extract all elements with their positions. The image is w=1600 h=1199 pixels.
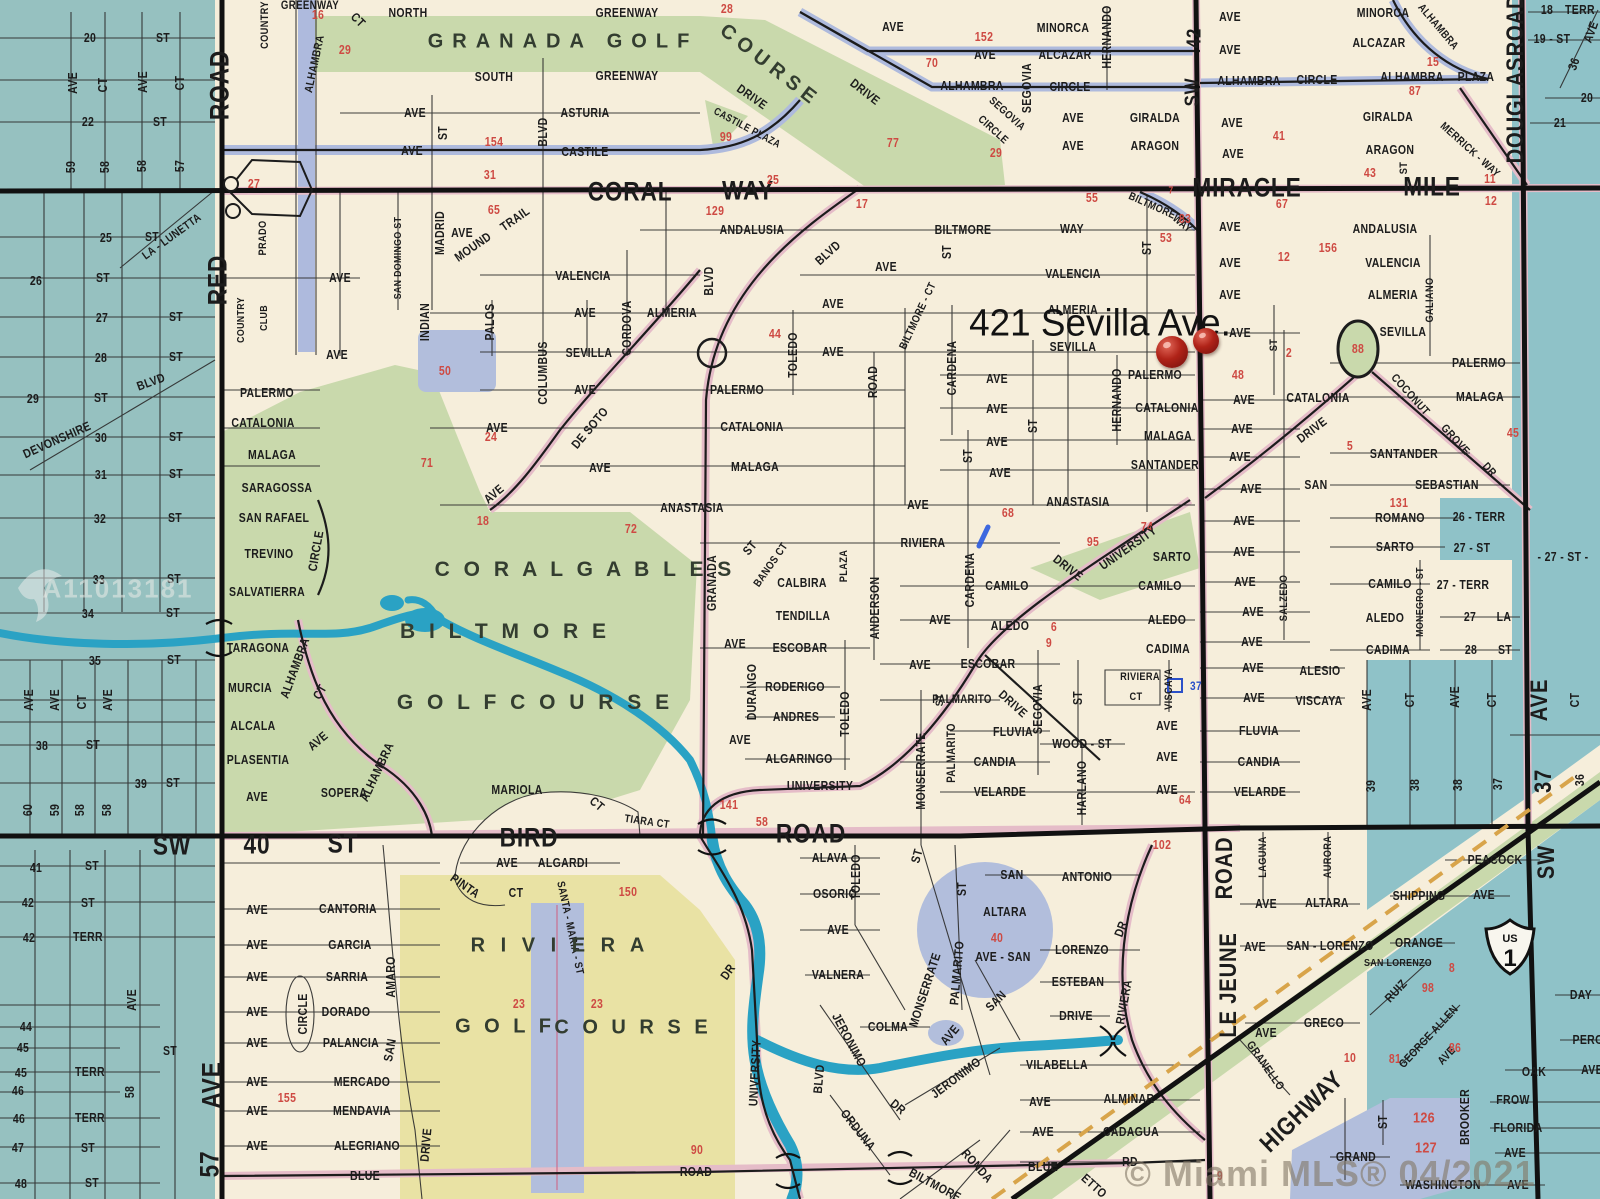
map-label: 36 [1573, 774, 1587, 786]
map-label: ST [94, 391, 108, 405]
map-label: AVE [1032, 1125, 1054, 1139]
map-label: 17 [856, 197, 868, 211]
map-label: FLUVIA [1239, 724, 1279, 738]
map-label: ROAD [776, 819, 846, 850]
map-label: ARAGON [1366, 143, 1415, 157]
map-label: ASTURIA [560, 106, 609, 120]
map-label: SEGOVIA [1031, 684, 1045, 734]
map-label: PLASENTIA [227, 753, 290, 767]
map-label: 32 [94, 512, 106, 526]
map-label: CATALONIA [231, 416, 294, 430]
watermark-footer: © Miami MLS® 04/2021 [1124, 1153, 1535, 1195]
map-label: 44 [20, 1020, 32, 1034]
map-label: 28 [721, 2, 733, 16]
map-label: RODERIGO [765, 680, 825, 694]
map-label: GREENWAY [596, 6, 659, 20]
map-label: ALHAMBRA [1380, 70, 1443, 84]
map-label: ST [436, 126, 450, 140]
map-label: SARTO [1153, 550, 1191, 564]
map-label: COUNTRY [235, 297, 247, 343]
map-label: SEGOVIA [1020, 63, 1034, 113]
map-label: CADAGUA [1103, 1125, 1159, 1139]
map-label: AVE [974, 48, 996, 62]
map-label: BROOKER [1458, 1089, 1472, 1145]
map-label: SALZEDO [1278, 575, 1290, 622]
map-label: ST [1376, 1115, 1390, 1129]
map-label: CT [75, 695, 89, 710]
map-label: ST [169, 310, 183, 324]
map-label: AVE [246, 1005, 268, 1019]
map-label: VALNERA [812, 968, 864, 982]
map-label: R I V I E R A [471, 935, 650, 958]
map-label: MARIOLA [491, 783, 542, 797]
map-label: ALMERIA [1368, 288, 1418, 302]
map-label: WOOD - ST [1052, 737, 1112, 751]
map-label: VELARDE [1234, 785, 1287, 799]
map-label: AVE [246, 1075, 268, 1089]
map-label: PEACOCK [1468, 853, 1523, 867]
map-pin [1193, 328, 1219, 354]
map-label: ST [1268, 339, 1280, 351]
map-label: TOLEDO [838, 691, 852, 737]
map-label: 20 [1581, 91, 1593, 105]
map-label: FLORIDA [1493, 1121, 1542, 1135]
map-label: CAMILO [1368, 577, 1411, 591]
map-label: ST [169, 430, 183, 444]
map-label: FLUVIA [993, 725, 1033, 739]
map-label: ALCALA [230, 719, 275, 733]
map-label: 25 [767, 173, 779, 187]
map-label: 59 [48, 804, 62, 816]
map-label: 19 - ST [1534, 32, 1571, 46]
map-label: MINORCA [1357, 6, 1410, 20]
map-label: CATALONIA [720, 420, 783, 434]
map-label: ST [156, 31, 170, 45]
map-label: 88 [1352, 342, 1364, 356]
map-label: AVE [1222, 147, 1244, 161]
map-label: - 27 - ST - [1538, 550, 1589, 564]
map-label: LE JEUNE [1215, 932, 1243, 1037]
map-label: ALEDO [991, 619, 1029, 633]
map-label: AVE [909, 658, 931, 672]
map-label: 58 [756, 815, 768, 829]
map-label: DORADO [322, 1005, 371, 1019]
map-label: ROAD [205, 50, 236, 120]
map-pin [1156, 336, 1188, 368]
map-label: ST [153, 115, 167, 129]
map-label: PRADO [257, 220, 269, 255]
map-label: 28 [1465, 643, 1477, 657]
map-label: 20 [84, 31, 96, 45]
map-label: ST [81, 1141, 95, 1155]
map-label: VALENCIA [1365, 256, 1421, 270]
map-label: PERCIVAL [1572, 1033, 1600, 1047]
map-label: 38 [36, 739, 48, 753]
map-label: ST [168, 511, 182, 525]
map-label: 102 [1153, 838, 1172, 852]
map-label: CAMILO [1138, 579, 1181, 593]
map-label: MILE [1403, 172, 1461, 203]
map-label: 60 [21, 804, 35, 816]
map-label: 48 [1232, 368, 1244, 382]
map-label: TOLEDO [786, 332, 800, 378]
map-label: BLUE [1028, 1160, 1058, 1174]
map-label: 37 [1491, 778, 1505, 790]
map-label: G O L F [455, 1016, 555, 1039]
map-label: ST [166, 606, 180, 620]
map-label: 10 [1344, 1051, 1356, 1065]
map-label: INDIAN [418, 303, 432, 341]
map-label: 27 - TERR [1437, 578, 1490, 592]
map-label: 150 [619, 885, 638, 899]
map-label: PALERMO [710, 383, 764, 397]
map-label: ST [955, 882, 969, 896]
map-label: AVE [48, 689, 62, 711]
map-label: 68 [1002, 506, 1014, 520]
map-label: AMARO [384, 956, 398, 997]
map-label: ALCAZAR [1352, 36, 1405, 50]
map-label: MINORCA [1037, 21, 1090, 35]
map-label: SEVILLA [566, 346, 613, 360]
map-label: ALAVA [812, 851, 848, 865]
map-label: TERR [73, 930, 103, 944]
map-label: CT [1130, 691, 1143, 703]
map-label: AVE [589, 461, 611, 475]
map-label: LORENZO [1055, 943, 1109, 957]
map-label: RIVIERA [901, 536, 946, 550]
map-label: VISCAYA [1295, 694, 1342, 708]
map-label: 70 [926, 56, 938, 70]
map-label: GRANADA [705, 555, 719, 611]
map-label: MALAGA [1456, 390, 1504, 404]
map-label: WAY [1060, 222, 1084, 236]
map-label: SAN [1304, 478, 1327, 492]
map-label: 38 [1408, 779, 1422, 791]
map-label: MADRID [433, 211, 447, 255]
map-label: 77 [887, 136, 899, 150]
map-label: AVE [1233, 393, 1255, 407]
map-label: MERCADO [334, 1075, 391, 1089]
map-label: 27 [248, 177, 260, 191]
map-label: 43 [1364, 166, 1376, 180]
map-label: 37 [1530, 769, 1558, 793]
map-label: OAK [1522, 1065, 1546, 1079]
map-label: SOUTH [475, 70, 513, 84]
map-label: SANTANDER [1370, 447, 1438, 461]
map-label: 39 [1364, 780, 1378, 792]
map-label: ALESIO [1299, 664, 1340, 678]
map-label: CT [1568, 693, 1582, 708]
map-label: AVE [1240, 482, 1262, 496]
map-label: 44 [769, 327, 781, 341]
map-label: AVE [986, 435, 1008, 449]
map-label: 29 [339, 43, 351, 57]
map-label: SW [153, 831, 191, 862]
map-label: NORTH [388, 6, 427, 20]
map-label: PALERMO [240, 386, 294, 400]
map-label: 26 - TERR [1453, 510, 1506, 524]
map-label: MURCIA [228, 681, 272, 695]
map-label: GRECO [1304, 1016, 1344, 1030]
map-label: DURANGO [745, 664, 759, 721]
map-label: DRIVE [418, 1128, 435, 1163]
map-label: 72 [625, 522, 637, 536]
map-label: ROAD [1211, 837, 1239, 900]
map-label: ROAD [680, 1165, 712, 1179]
map-label: 58 [135, 160, 149, 172]
map-label: 27 [96, 311, 108, 325]
map-label: BLVD [536, 117, 550, 146]
map-label: AVE [246, 1104, 268, 1118]
map-label: ESTEBAN [1052, 975, 1105, 989]
map-label: AVE [1244, 940, 1266, 954]
map-label: 90 [691, 1143, 703, 1157]
map-label: PALMARITO [946, 723, 958, 783]
map-label: AVE [1243, 691, 1265, 705]
map-label: AVE [401, 144, 423, 158]
map-label: SALVATIERRA [229, 585, 305, 599]
map-label: LA [1497, 610, 1512, 624]
map-label: AVE [1234, 575, 1256, 589]
map-label: 42 [23, 931, 35, 945]
map-label: 50 [439, 364, 451, 378]
map-label: VALENCIA [555, 269, 611, 283]
map-label: BILTMORE [935, 223, 992, 237]
map-label: 46 [13, 1112, 25, 1126]
map-label: CARDENA [963, 553, 977, 608]
map-label: 16 [312, 8, 324, 22]
map-label: B I L T M O R E [400, 620, 610, 644]
map-label: SARRIA [326, 970, 368, 984]
map-label: CT [1485, 693, 1499, 708]
map-label: AVE [1229, 450, 1251, 464]
map-label: ANDALUSIA [1353, 222, 1418, 236]
map-label: 12 [1485, 194, 1497, 208]
map-label: PLAZA [1458, 70, 1495, 84]
map-label: 58 [100, 804, 114, 816]
map-label: AVE [1219, 10, 1241, 24]
map-label: ST [1498, 643, 1512, 657]
map-label: 41 [30, 861, 42, 875]
map-label: ST [86, 738, 100, 752]
map-label: VILABELLA [1026, 1058, 1088, 1072]
map-label: 11 [1484, 172, 1496, 186]
map-label: 30 [95, 431, 107, 445]
map-label: ST [166, 776, 180, 790]
map-label: ST [1071, 691, 1085, 705]
map-label: AVE [1255, 1026, 1277, 1040]
map-label: ST [169, 350, 183, 364]
map-label: 18 [1541, 3, 1553, 17]
map-label: 59 [64, 161, 78, 173]
map-label: SHIPPING [1393, 889, 1446, 903]
map-label: SAN LORENZO [1364, 957, 1432, 969]
map-label: ORANGE [1395, 936, 1443, 950]
us1-shield-us: US [1502, 933, 1517, 945]
map-label: ST [167, 653, 181, 667]
map-label: SARAGOSSA [242, 481, 313, 495]
map-label: RED [203, 255, 234, 305]
map-label: AVE [1473, 888, 1495, 902]
map-label: 27 - ST [1454, 541, 1491, 555]
map-label: TENDILLA [776, 609, 831, 623]
map-label: AVE [1526, 679, 1554, 721]
map-label: C O U R S E [554, 1017, 711, 1040]
map-label: ST [934, 694, 946, 706]
map-label: 12 [1278, 250, 1290, 264]
map-label: AVE [1221, 116, 1243, 130]
map-label: 64 [1179, 793, 1191, 807]
map-label: AVE [986, 402, 1008, 416]
map-label: AVE [1062, 139, 1084, 153]
map-label: AVE [729, 733, 751, 747]
map-label: ANASTASIA [660, 501, 723, 515]
map-label: AVE [246, 970, 268, 984]
map-label: BLVD [811, 1064, 827, 1094]
map-label: TERR [75, 1111, 105, 1125]
us1-shield-number: 1 [1503, 945, 1516, 972]
map-label: 57 [173, 160, 187, 172]
map-label: COLUMBUS [536, 341, 550, 404]
map-label: 7 [1168, 186, 1173, 197]
map-label: 99 [720, 130, 732, 144]
map-label: 131 [1390, 496, 1409, 510]
map-label: HERNANDO [1110, 368, 1124, 431]
map-label: AVE [66, 72, 80, 94]
map-label: AVE [1581, 1063, 1600, 1077]
map-label: RIVIERA [1120, 671, 1160, 683]
map-label: 40 [244, 830, 271, 861]
map-label: AVE - SAN [975, 950, 1030, 964]
map-label: AVE [329, 271, 351, 285]
address-annotation: 421 Sevilla Ave. [969, 303, 1231, 346]
map-screenshot: US 1 20ST22STAVECTAVECT5958585725ST26STL… [0, 0, 1600, 1199]
map-label: 58 [123, 1086, 137, 1098]
map-label: AVE [1219, 43, 1241, 57]
map-label: AVE [907, 498, 929, 512]
map-label: 141 [720, 798, 739, 812]
map-label: 39 [135, 777, 147, 791]
map-label: COLMA [868, 1020, 908, 1034]
map-label: AVE [246, 903, 268, 917]
map-label: AVE [1242, 661, 1264, 675]
map-label: MENDAVIA [333, 1104, 391, 1118]
map-label: ALEDO [1148, 613, 1186, 627]
map-label: AVE [1233, 545, 1255, 559]
map-label: ROMANO [1375, 511, 1425, 525]
map-label: 40 [991, 931, 1003, 945]
map-label: SAN - LORENZO [1286, 939, 1373, 953]
map-label: CT [509, 886, 524, 900]
map-label: 18 [477, 514, 489, 528]
map-label: AVE [1029, 1095, 1051, 1109]
map-label: ANASTASIA [1046, 495, 1109, 509]
map-label: DRIVE [1059, 1009, 1093, 1023]
map-label: AVE [1219, 220, 1241, 234]
map-label: 41 [1273, 129, 1285, 143]
map-label: AVE [882, 20, 904, 34]
map-label: ST [85, 859, 99, 873]
map-label: 55 [1086, 191, 1098, 205]
map-label: AVE [827, 923, 849, 937]
map-label: 58 [73, 804, 87, 816]
map-label: 37 [1190, 679, 1202, 693]
map-label: COUNTRY [259, 1, 271, 49]
map-label: 31 [95, 468, 107, 482]
map-label: 86 [1449, 1041, 1461, 1055]
map-label: 156 [1319, 241, 1338, 255]
map-label: CANTORIA [319, 902, 377, 916]
map-label: PALANCIA [323, 1036, 379, 1050]
map-label: AVE [1219, 256, 1241, 270]
map-label: CALBIRA [777, 576, 827, 590]
map-label: 67 [1276, 197, 1288, 211]
map-label: CT [96, 78, 110, 93]
map-label: 42 [1184, 28, 1207, 48]
map-label: AVE [246, 1139, 268, 1153]
map-label: ALTARA [983, 905, 1027, 919]
map-label: TERR [1565, 3, 1595, 17]
map-label: CATALONIA [1286, 391, 1349, 405]
map-label: GREENWAY [281, 0, 339, 12]
map-label: ST [169, 467, 183, 481]
map-label: 45 [17, 1041, 29, 1055]
map-label: AVE [1242, 605, 1264, 619]
map-label: ALGARDI [538, 856, 588, 870]
map-label: DAY [1570, 988, 1592, 1002]
map-label: PALERMO [1452, 356, 1506, 370]
map-label: AVE [574, 383, 596, 397]
map-label: ST [1398, 162, 1410, 174]
map-label: AVE [1255, 897, 1277, 911]
map-label: CADIMA [1146, 642, 1190, 656]
map-label: DOUGLAS [1502, 57, 1530, 164]
map-label: CADIMA [1366, 643, 1410, 657]
map-label: SEBASTIAN [1415, 478, 1479, 492]
map-label: ALCAZAR [1038, 48, 1091, 62]
map-label: GREENWAY [596, 69, 659, 83]
map-label: ESCOBAR [773, 641, 828, 655]
map-label: AVE [875, 260, 897, 274]
map-label: 57 [195, 1151, 226, 1178]
map-label: MONEGRO - ST [1414, 567, 1426, 637]
map-label: CLUB [258, 305, 270, 331]
map-label: AVE [326, 348, 348, 362]
map-label: ALEDO [1366, 611, 1404, 625]
map-label: BLVD [702, 266, 716, 295]
map-label: 23 [513, 997, 525, 1011]
map-label: GRANADA GOLF [428, 31, 699, 54]
map-label: TERR [75, 1065, 105, 1079]
map-label: AVE [496, 856, 518, 870]
map-label: 26 [30, 274, 42, 288]
map-label: 15 [1427, 55, 1439, 69]
map-label: AVE [1229, 326, 1251, 340]
map-label: 6 [1051, 620, 1057, 634]
basemap-graphics: US 1 [0, 0, 1600, 1199]
map-label: 22 [82, 115, 94, 129]
map-label: AVE [486, 421, 508, 435]
map-label: 28 [95, 351, 107, 365]
map-label: ESCOBAR [961, 657, 1016, 671]
map-label: AVE [136, 71, 150, 93]
map-label: AVE [22, 689, 36, 711]
map-label: 45 [1507, 426, 1519, 440]
map-label: AVE [724, 637, 746, 651]
map-label: SAN RAFAEL [239, 511, 309, 525]
map-label: TREVINO [244, 547, 293, 561]
map-label: ST [96, 271, 110, 285]
